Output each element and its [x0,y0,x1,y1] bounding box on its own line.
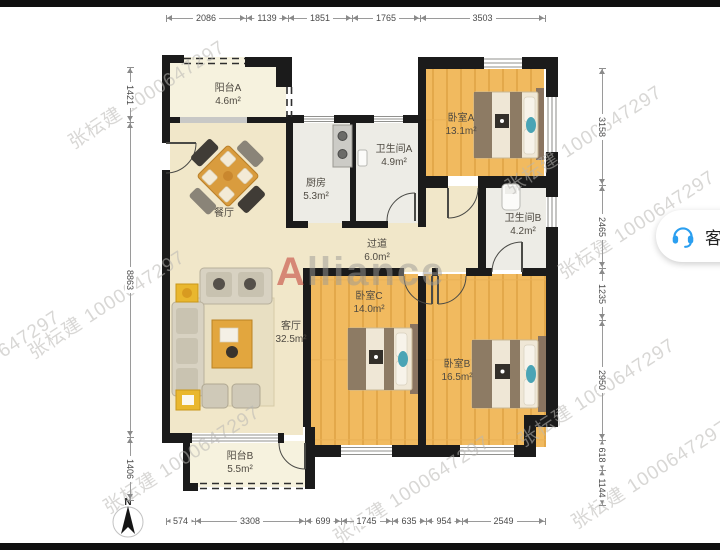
dimension-value-left-2: 1406 [125,455,135,481]
dimension-value-top-2: 1851 [307,13,333,23]
bath-a-floor [356,119,422,223]
dimension-value-right-0: 3158 [597,113,607,139]
dimension-value-right-2: 1235 [597,281,607,307]
north-compass: N [113,497,143,537]
top-letterbox-bar [0,0,720,7]
dimension-value-top-0: 2086 [193,13,219,23]
headset-icon [670,223,696,249]
sink [358,150,367,166]
bed-bedroom-a [474,88,544,160]
dimension-value-bottom-0: 574 [170,516,191,526]
dimension-value-right-3: 2950 [597,367,607,393]
customer-service-label: 客 [705,224,720,249]
dimension-value-top-4: 3503 [469,13,495,23]
dimension-value-bottom-5: 954 [433,516,454,526]
floor-plan-drawing: N [0,0,720,550]
ottoman [232,384,260,408]
dimension-value-right-4: 618 [597,444,607,465]
dimension-value-bottom-1: 3308 [237,516,263,526]
dimension-value-top-1: 1139 [254,13,279,23]
balcony-b-floor [188,441,305,487]
living-room-set [172,268,274,410]
floor-plan-page: N 张枟建 1000647297 张枟建 1000647297 张枟建 1000… [0,0,720,550]
dimension-value-top-3: 1765 [373,13,399,23]
dimension-value-right-5: 1144 [597,475,607,500]
dimension-value-left-0: 1421 [125,81,135,107]
bottom-letterbox-bar [0,543,720,550]
kitchen-stove [333,125,352,167]
dimension-value-bottom-3: 1745 [353,516,379,526]
dimension-value-right-1: 2465 [597,213,607,239]
coffee-table [212,320,252,368]
dimension-value-bottom-6: 2549 [490,516,516,526]
dimension-value-left-1: 8863 [125,266,135,292]
dimension-value-bottom-4: 635 [398,516,419,526]
customer-service-button[interactable]: 客 [656,210,720,262]
bed-bedroom-b [472,336,546,412]
ottoman [202,384,228,408]
dimension-value-bottom-2: 699 [312,516,333,526]
bed-bedroom-c [348,324,418,394]
hallway-floor-upper [424,186,480,270]
